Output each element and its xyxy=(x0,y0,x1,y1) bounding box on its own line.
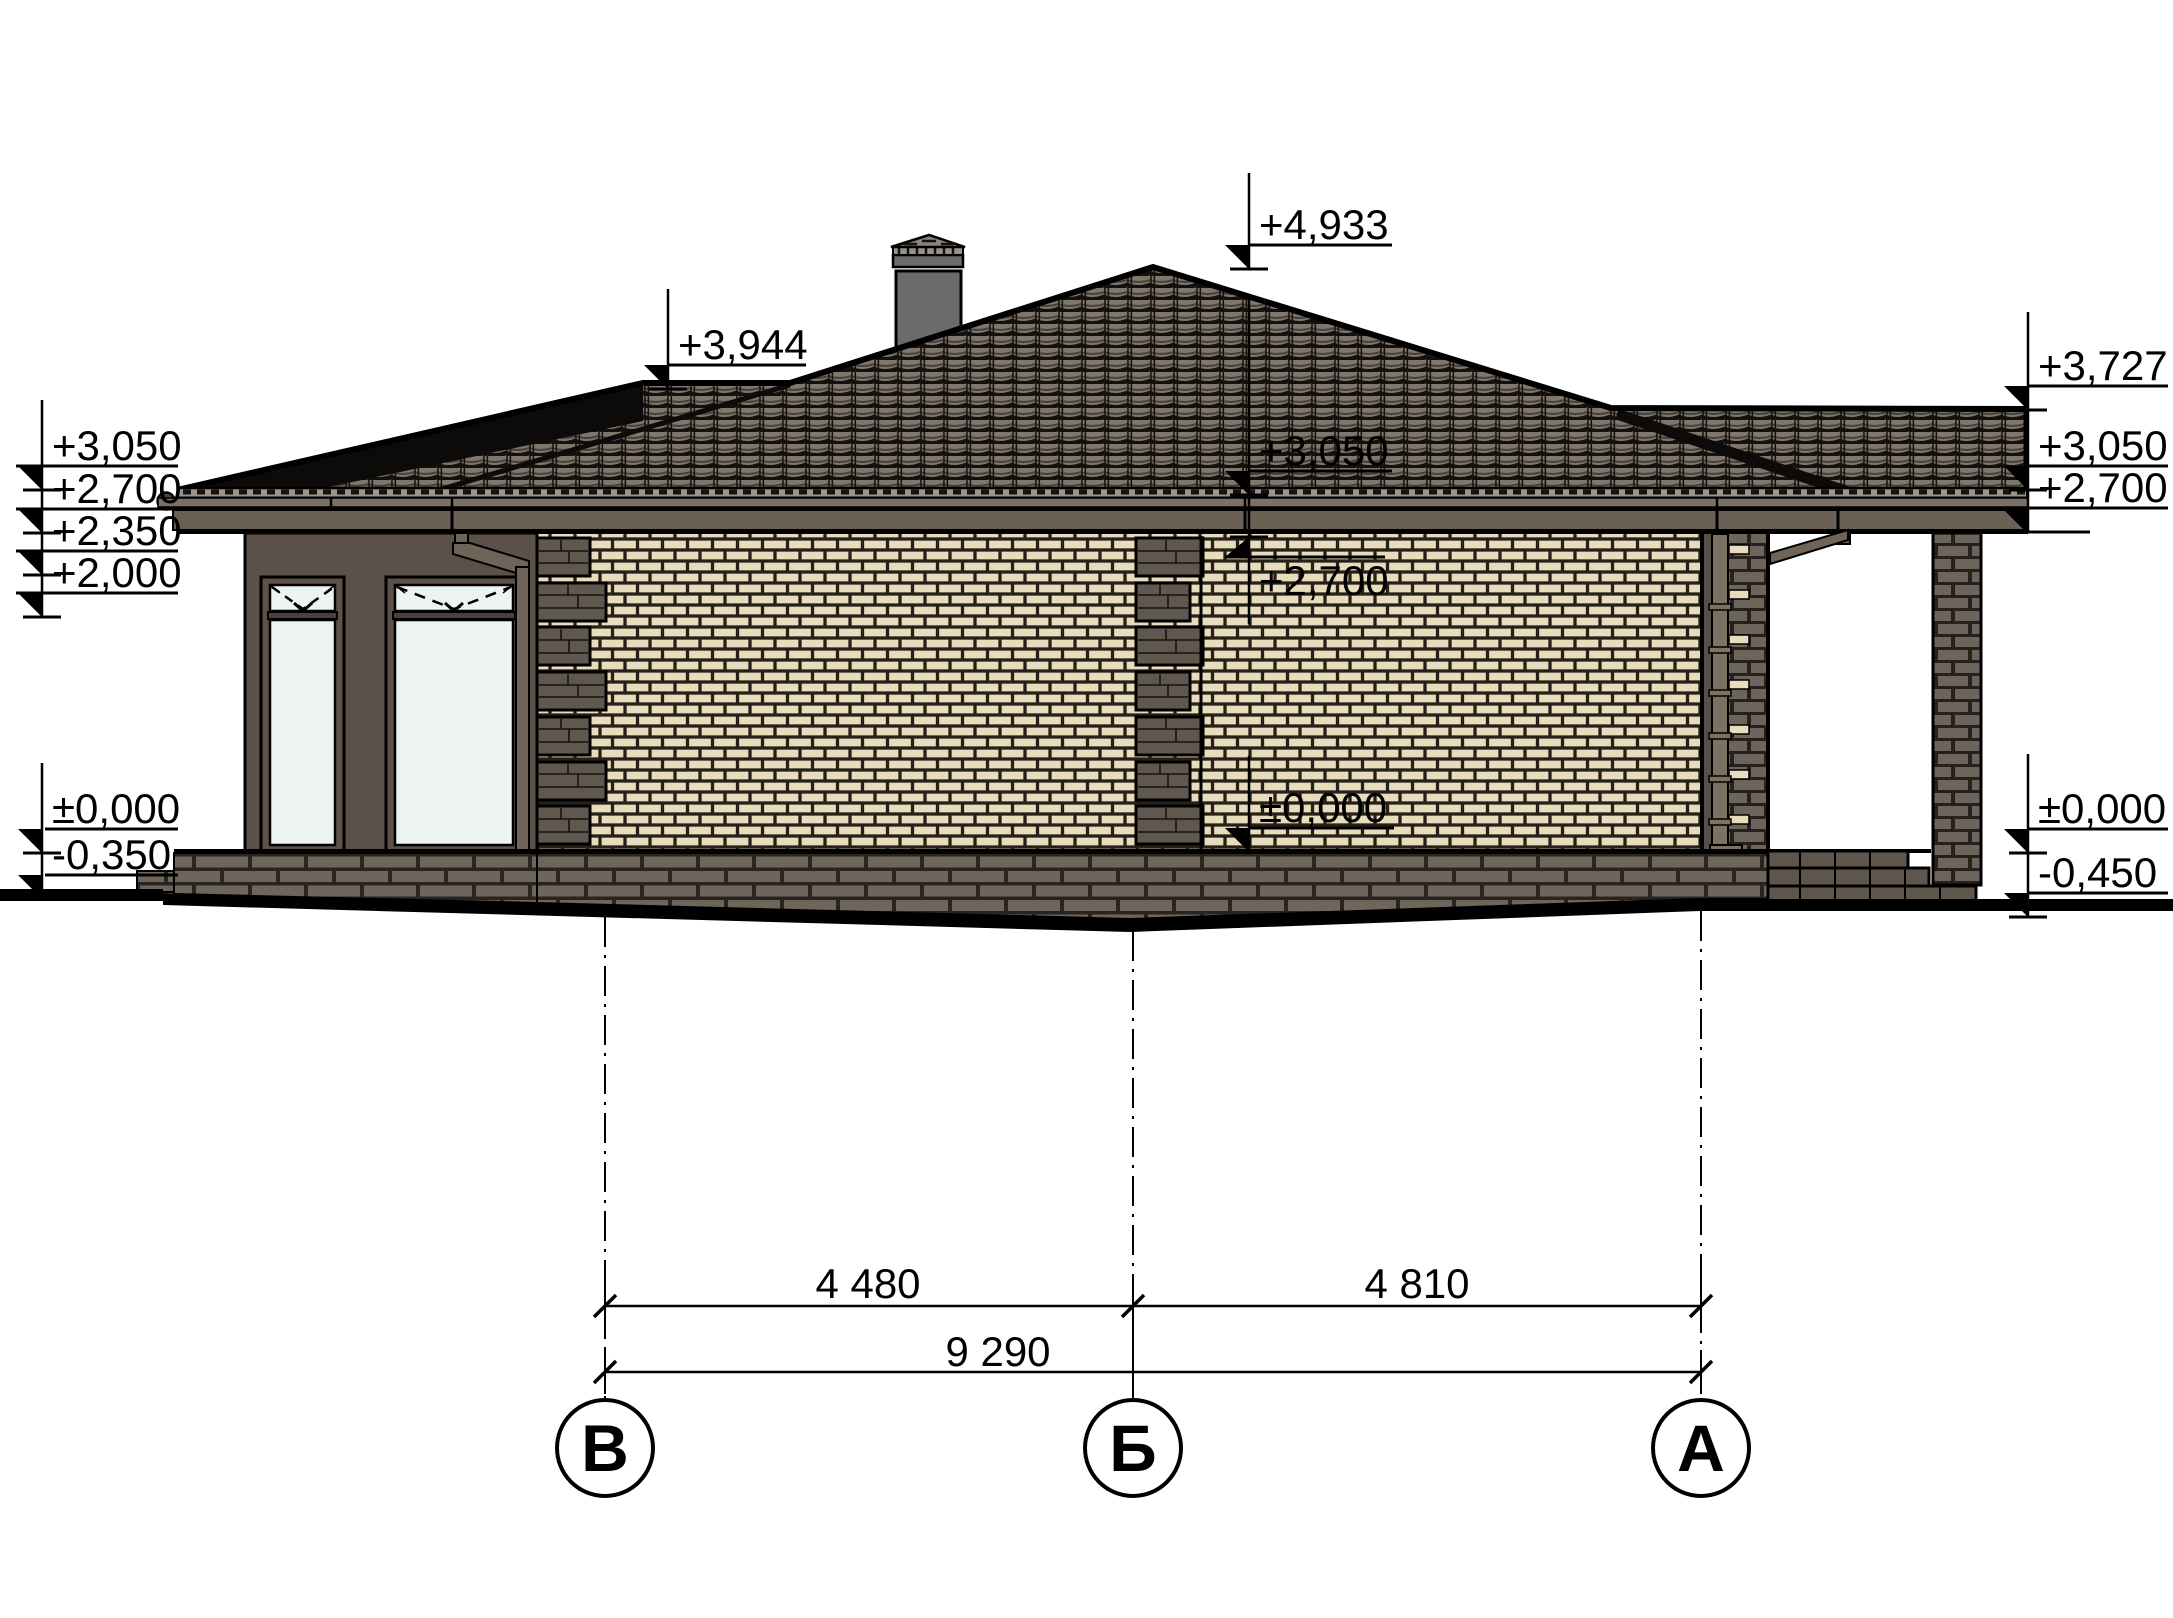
svg-text:±0,000: ±0,000 xyxy=(2038,785,2166,832)
svg-text:+3,050: +3,050 xyxy=(2038,422,2168,469)
svg-text:-0,350: -0,350 xyxy=(52,831,171,878)
svg-text:±0,000: ±0,000 xyxy=(52,785,180,832)
svg-text:+2,700: +2,700 xyxy=(52,465,182,512)
svg-text:А: А xyxy=(1677,1411,1725,1485)
svg-text:+4,933: +4,933 xyxy=(1259,201,1389,248)
svg-text:+2,700: +2,700 xyxy=(1259,557,1389,604)
svg-text:-0,450: -0,450 xyxy=(2038,849,2157,896)
svg-text:4 810: 4 810 xyxy=(1364,1260,1469,1307)
svg-text:±0,000: ±0,000 xyxy=(1259,784,1387,831)
svg-text:+3,727: +3,727 xyxy=(2038,342,2168,389)
svg-text:+2,000: +2,000 xyxy=(52,549,182,596)
svg-text:+2,700: +2,700 xyxy=(2038,464,2168,511)
svg-text:+3,944: +3,944 xyxy=(678,321,808,368)
svg-text:+3,050: +3,050 xyxy=(52,422,182,469)
svg-text:+2,350: +2,350 xyxy=(52,507,182,554)
svg-text:Б: Б xyxy=(1109,1411,1156,1485)
svg-text:9 290: 9 290 xyxy=(945,1328,1050,1375)
svg-text:В: В xyxy=(581,1411,629,1485)
svg-text:+3,050: +3,050 xyxy=(1259,427,1389,474)
svg-text:4 480: 4 480 xyxy=(815,1260,920,1307)
